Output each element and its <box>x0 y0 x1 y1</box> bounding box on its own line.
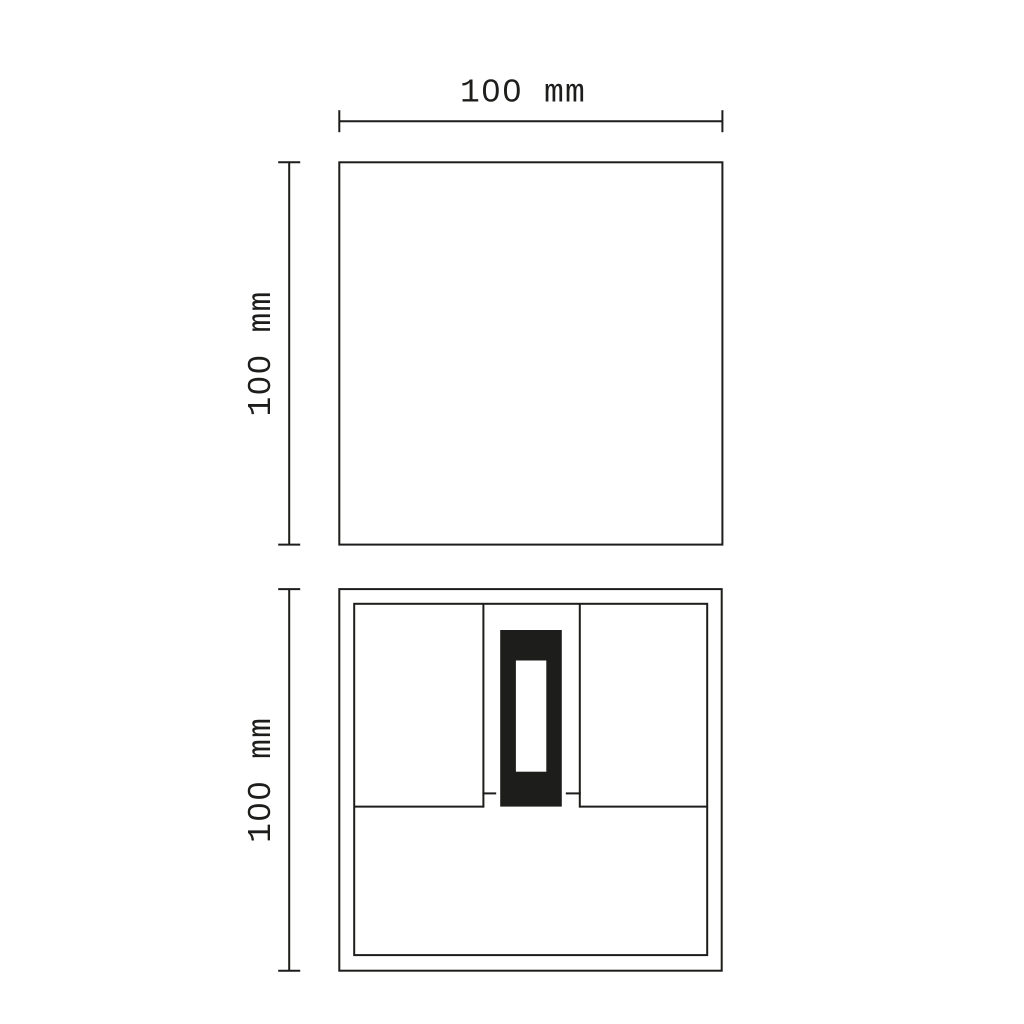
svg-text:100 mm: 100 mm <box>460 75 586 112</box>
svg-text:100 mm: 100 mm <box>243 290 280 416</box>
svg-text:100 mm: 100 mm <box>243 717 280 843</box>
